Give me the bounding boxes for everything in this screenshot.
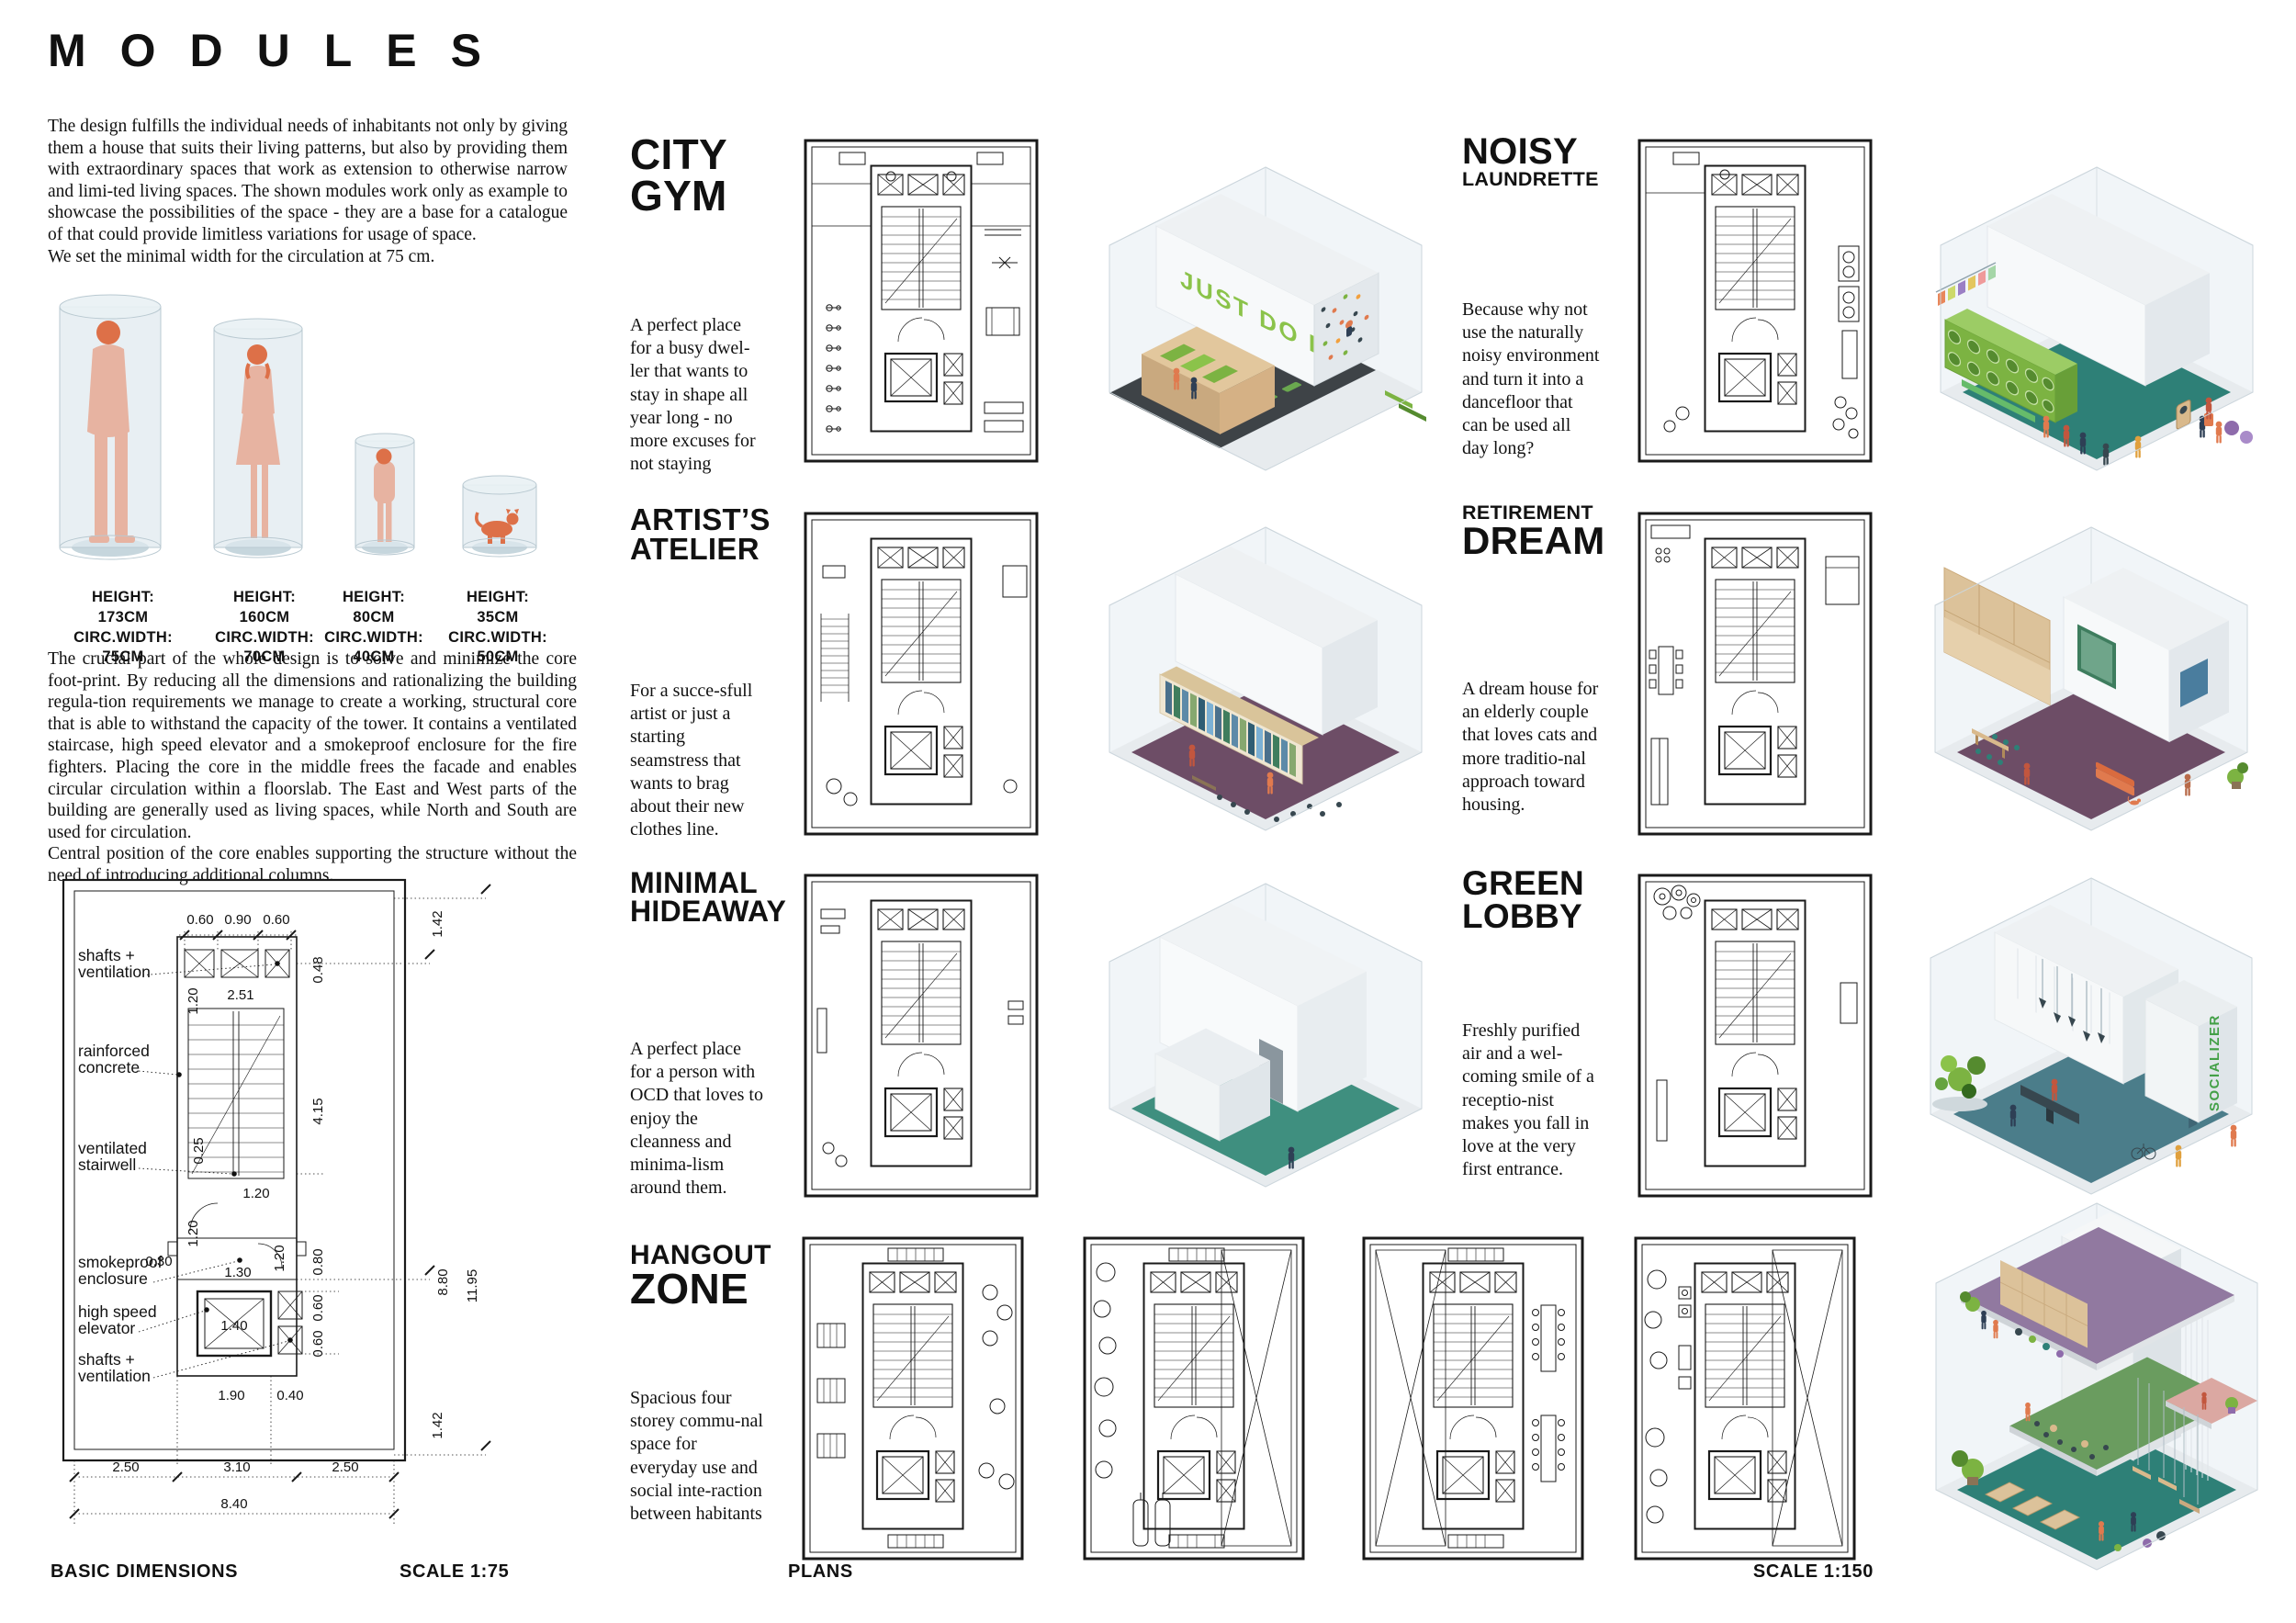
svg-text:1.30: 1.30 (224, 1265, 251, 1280)
module-title-city-gym: CITYGYM (630, 134, 727, 216)
poster-modules: MODULES The design fulfills the individu… (0, 0, 2296, 1623)
cylinder-woman (214, 319, 302, 558)
intro-paragraph-2: The crucial part of the whole design is … (48, 648, 577, 887)
module-title-retirement-dream: RETIREMENTDREAM (1462, 503, 1605, 560)
svg-text:1.42: 1.42 (430, 1412, 445, 1438)
svg-text:smokeproof: smokeproof (78, 1253, 163, 1271)
intro-paragraph-1: The design fulfills the individual needs… (48, 116, 568, 267)
render-retirement-dream (1903, 511, 2279, 851)
caption-scale-75: SCALE 1:75 (400, 1561, 509, 1583)
module-desc-minimal-hideaway: A perfect place for a person with OCD th… (630, 1038, 766, 1200)
module-desc-city-gym: A perfect place for a busy dwel-ler that… (630, 314, 760, 476)
module-title-artists-atelier: ARTIST’SATELIER (630, 505, 771, 564)
svg-text:2.50: 2.50 (332, 1460, 358, 1475)
lobby-small-volume (2145, 980, 2237, 1122)
svg-text:concrete: concrete (78, 1058, 140, 1076)
svg-text:stairwell: stairwell (78, 1155, 136, 1174)
render-hangout-zone (1908, 1194, 2285, 1572)
svg-text:1.20: 1.20 (242, 1186, 269, 1201)
module-title-noisy-laundrette: NOISYLAUNDRETTE (1462, 134, 1599, 189)
svg-text:3.10: 3.10 (223, 1460, 250, 1475)
module-desc-green-lobby: Freshly purified air and a wel-coming sm… (1462, 1020, 1602, 1181)
plan-minimal-hideaway (803, 873, 1040, 1199)
svg-text:1.90: 1.90 (218, 1388, 244, 1403)
svg-text:ventilation: ventilation (78, 1367, 151, 1385)
plan-hangout-storey-2 (1082, 1235, 1306, 1561)
svg-text:2.50: 2.50 (112, 1460, 139, 1475)
page-title: MODULES (48, 24, 515, 77)
module-title-minimal-hideaway: MINIMALHIDEAWAY (630, 869, 786, 926)
svg-text:1.42: 1.42 (430, 910, 445, 937)
socializer-sign: SOCIALIZER (2207, 1014, 2223, 1111)
svg-text:4.15: 4.15 (310, 1098, 326, 1124)
svg-text:0.25: 0.25 (191, 1137, 207, 1164)
caption-plans: PLANS (788, 1561, 853, 1583)
basic-dimensions-drawing: 0.60 0.90 0.60 1.20 2.51 0.25 1.20 1.20 … (51, 871, 501, 1558)
svg-text:8.40: 8.40 (220, 1496, 247, 1512)
cylinder-child (355, 434, 414, 555)
render-artists-atelier (1082, 511, 1449, 851)
svg-text:8.80: 8.80 (435, 1268, 451, 1295)
plan-hangout-storey-1 (801, 1235, 1025, 1561)
render-green-lobby: SOCIALIZER (1903, 863, 2279, 1212)
svg-text:shafts +: shafts + (78, 946, 135, 964)
plan-hangout-storey-3 (1361, 1235, 1585, 1561)
svg-text:rainforced: rainforced (78, 1042, 150, 1060)
svg-text:1.40: 1.40 (220, 1318, 247, 1334)
svg-text:0.80: 0.80 (310, 1248, 326, 1275)
plan-noisy-laundrette (1637, 138, 1874, 464)
intro-paragraph-1a: The design fulfills the individual needs… (48, 116, 568, 246)
svg-text:0.90: 0.90 (224, 912, 251, 928)
cylinder-man (60, 295, 161, 559)
module-title-green-lobby: GREENLOBBY (1462, 867, 1584, 933)
plan-hangout-storey-4 (1633, 1235, 1857, 1561)
plan-city-gym (803, 138, 1040, 464)
svg-text:ventilated: ventilated (78, 1139, 147, 1157)
child-silhouette-head (377, 449, 392, 465)
svg-text:0.48: 0.48 (310, 956, 326, 983)
module-desc-hangout-zone: Spacious four storey commu-nal space for… (630, 1387, 766, 1526)
module-desc-noisy-laundrette: Because why not use the naturally noisy … (1462, 299, 1602, 460)
module-desc-artists-atelier: For a succe-sfull artist or just a start… (630, 680, 766, 841)
svg-text:0.60: 0.60 (263, 912, 289, 928)
svg-text:shafts +: shafts + (78, 1350, 135, 1369)
svg-text:1.20: 1.20 (186, 1220, 201, 1246)
render-noisy-laundrette (1908, 154, 2285, 485)
caption-basic-dimensions: BASIC DIMENSIONS (51, 1561, 238, 1583)
svg-text:11.95: 11.95 (465, 1269, 480, 1302)
svg-text:elevator: elevator (78, 1319, 135, 1337)
svg-text:0.60: 0.60 (186, 912, 213, 928)
plan-artists-atelier (803, 511, 1040, 837)
render-minimal-hideaway (1082, 865, 1449, 1214)
module-title-hangout-zone: HANGOUTZONE (630, 1242, 771, 1310)
render-city-gym: JUST DO IT. (1082, 154, 1449, 485)
svg-text:0.60: 0.60 (310, 1330, 326, 1357)
svg-text:1.20: 1.20 (272, 1245, 287, 1271)
svg-text:ventilation: ventilation (78, 963, 151, 981)
caption-scale-150: SCALE 1:150 (1736, 1561, 1874, 1583)
intro-paragraph-1b: We set the minimal width for the circula… (48, 246, 568, 268)
svg-text:2.51: 2.51 (227, 987, 253, 1003)
svg-text:0.60: 0.60 (310, 1294, 326, 1321)
man-silhouette-head (96, 321, 120, 344)
plan-retirement-dream (1637, 511, 1874, 837)
woman-silhouette-head (247, 344, 267, 365)
cylinder-cat (463, 476, 536, 557)
module-desc-retirement-dream: A dream house for an elderly couple that… (1462, 678, 1602, 817)
circulation-figures-graphic (41, 276, 556, 566)
plan-green-lobby (1637, 873, 1874, 1199)
svg-text:1.20: 1.20 (186, 987, 201, 1014)
svg-text:high speed: high speed (78, 1302, 157, 1321)
svg-text:enclosure: enclosure (78, 1269, 148, 1288)
svg-text:0.40: 0.40 (276, 1388, 303, 1403)
